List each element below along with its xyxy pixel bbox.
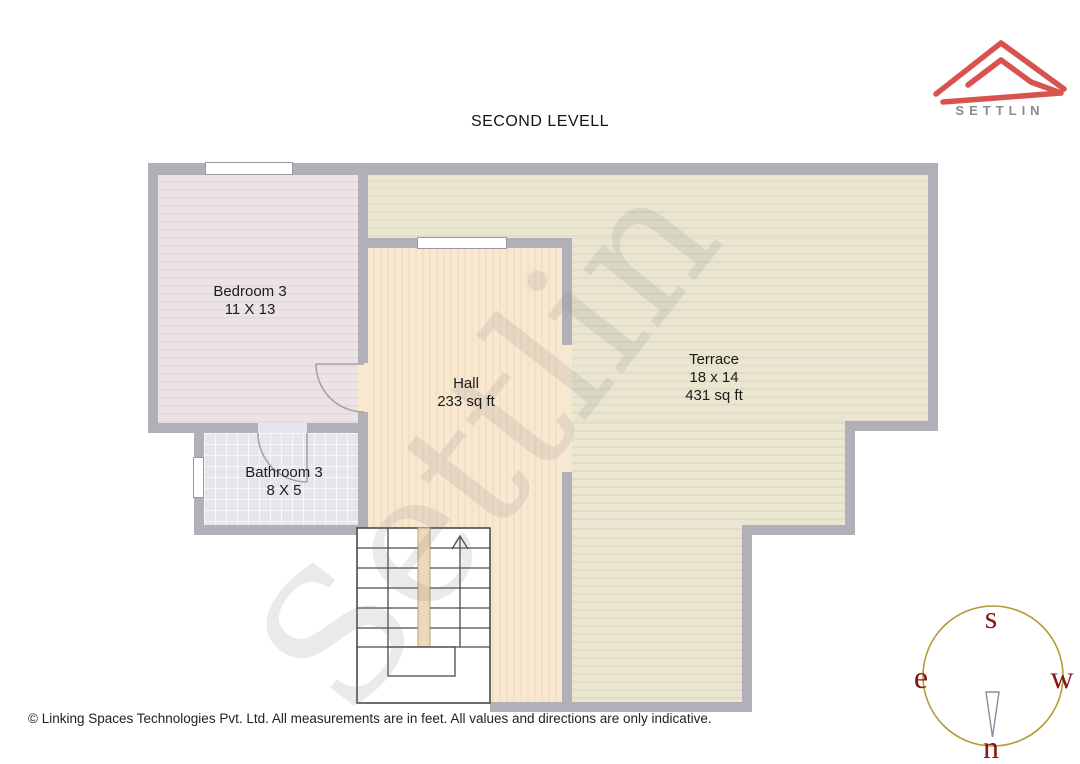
hall-label: Hall 233 sq ft (366, 375, 566, 411)
page-title: SECOND LEVELL (0, 113, 1080, 131)
wall-segment (194, 525, 368, 535)
hall-name: Hall (366, 375, 566, 393)
hall-area: 233 sq ft (366, 393, 566, 411)
bedroom-name: Bedroom 3 (150, 283, 350, 301)
terrace-floor (572, 421, 845, 525)
copyright-disclaimer: © Linking Spaces Technologies Pvt. Ltd. … (28, 711, 712, 726)
hall-window (417, 237, 507, 249)
compass-west: w (1050, 659, 1073, 695)
bathroom-label: Bathroom 3 8 X 5 (194, 464, 374, 500)
bathroom-door-opening (258, 423, 307, 433)
wall-segment (562, 248, 572, 345)
wall-segment (307, 423, 368, 433)
terrace-size: 18 x 14 (614, 369, 814, 387)
terrace-floor (572, 525, 742, 702)
floor-plan-page: SECOND LEVELL SETTLIN (0, 0, 1080, 764)
compass-south: s (985, 599, 997, 635)
wall-segment (928, 175, 938, 431)
settlin-logo-icon (928, 30, 1072, 108)
staircase (356, 527, 491, 704)
compass-north: n (983, 729, 999, 764)
wall-segment (855, 421, 928, 431)
bedroom-window (205, 162, 293, 175)
wall-segment (358, 412, 368, 423)
stair-divider (418, 528, 430, 647)
terrace-name: Terrace (614, 351, 814, 369)
bathroom-name: Bathroom 3 (194, 464, 374, 482)
bedroom-size: 11 X 13 (150, 301, 350, 319)
wall-segment (562, 472, 572, 702)
brand-name: SETTLIN (928, 103, 1072, 118)
terrace-floor (368, 175, 928, 238)
terrace-label: Terrace 18 x 14 431 sq ft (614, 351, 814, 405)
wall-segment (358, 175, 368, 363)
compass-east: e (914, 659, 928, 695)
compass-rose: s e w n (905, 592, 1080, 764)
terrace-area: 431 sq ft (614, 387, 814, 405)
bedroom-label: Bedroom 3 11 X 13 (150, 283, 350, 319)
wall-segment (752, 525, 845, 535)
wall-segment (742, 525, 752, 712)
wall-segment (845, 421, 855, 535)
bathroom-size: 8 X 5 (194, 482, 374, 500)
